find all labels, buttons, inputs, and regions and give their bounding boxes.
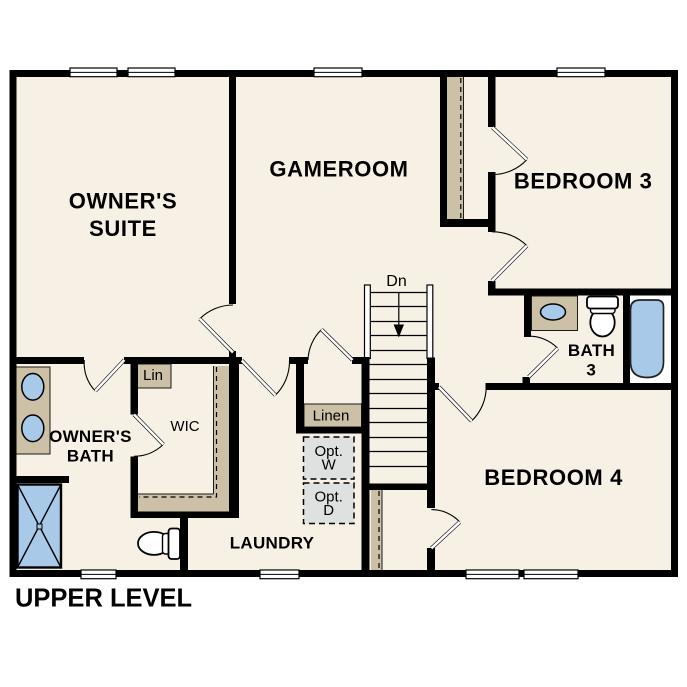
svg-text:BATH: BATH xyxy=(67,446,114,465)
svg-text:UPPER LEVEL: UPPER LEVEL xyxy=(15,585,192,613)
svg-text:BEDROOM 4: BEDROOM 4 xyxy=(484,465,623,490)
svg-text:GAMEROOM: GAMEROOM xyxy=(269,157,408,182)
svg-text:Dn: Dn xyxy=(386,273,406,290)
svg-text:SUITE: SUITE xyxy=(89,216,157,241)
svg-text:WIC: WIC xyxy=(170,418,199,435)
svg-text:Lin: Lin xyxy=(143,367,163,384)
svg-text:OWNER'S: OWNER'S xyxy=(69,189,177,214)
svg-text:LAUNDRY: LAUNDRY xyxy=(230,533,315,552)
svg-text:OWNER'S: OWNER'S xyxy=(49,427,132,446)
svg-text:BATH: BATH xyxy=(568,341,615,360)
svg-text:W: W xyxy=(322,457,337,474)
svg-text:Linen: Linen xyxy=(313,408,350,425)
svg-text:D: D xyxy=(323,502,334,519)
svg-text:3: 3 xyxy=(586,360,596,379)
svg-text:BEDROOM 3: BEDROOM 3 xyxy=(514,169,653,194)
